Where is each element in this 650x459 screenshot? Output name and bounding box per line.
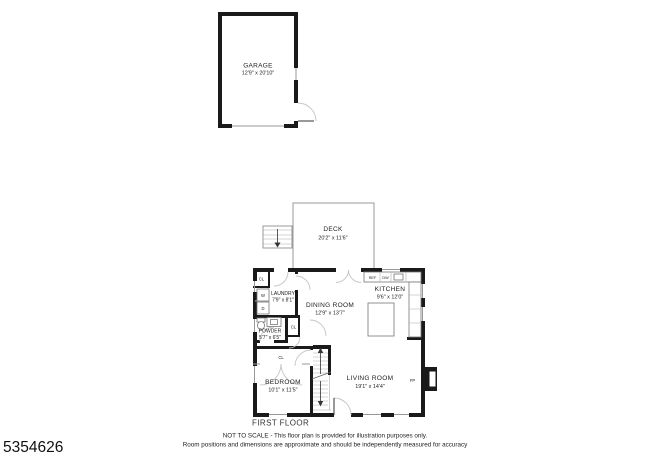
dining-room-dims: 12'9" x 13'7"	[315, 311, 345, 317]
laundry-dims: 7'9" x 8'1"	[272, 298, 294, 304]
living-room-name: LIVING ROOM	[347, 375, 394, 382]
kitchen-fixtures: REF DW	[364, 272, 421, 337]
laundry-fixtures: W D	[257, 289, 269, 314]
fireplace-firebox	[430, 372, 436, 387]
garage-name: GARAGE	[243, 63, 273, 70]
laundry-deck-door-arc	[274, 272, 288, 286]
deck: DECK 20'2" x 11'6"	[263, 203, 374, 268]
floor-label: FIRST FLOOR	[252, 419, 309, 428]
floor-plan-page: GARAGE 12'9" x 20'10" DECK 20'2" x 11'6"…	[0, 0, 650, 459]
garage-dims: 12'9" x 20'10"	[242, 71, 275, 77]
living-room-dims: 19'1" x 14'4"	[355, 384, 385, 390]
washer-label: W	[261, 293, 265, 298]
fireplace: FP	[410, 367, 437, 391]
garage: GARAGE 12'9" x 20'10"	[218, 12, 316, 128]
deck-double-door-arc-right	[349, 270, 362, 283]
powder-dims: 5'7" x 6'5"	[259, 335, 281, 341]
dining-room-name: DINING ROOM	[306, 302, 354, 309]
dryer-label: D	[261, 306, 264, 311]
deck-stairs	[263, 226, 292, 248]
laundry-name: LAUNDRY	[271, 291, 295, 297]
fireplace-label: FP	[410, 378, 416, 383]
bedroom-dims: 10'1" x 11'5"	[268, 388, 297, 394]
hall-door-arc	[310, 320, 326, 336]
kitchen-sink	[394, 274, 403, 280]
kitchen-name: KITCHEN	[375, 286, 406, 293]
deck-stairs-arrow-head	[275, 243, 281, 248]
stair-down-arrow-head	[318, 401, 323, 407]
refrigerator-label: REF	[369, 276, 377, 280]
powder-name: POWDER	[259, 329, 282, 335]
laundry-dining-door-arc	[296, 276, 310, 290]
deck-dims: 20'2" x 11'6"	[318, 236, 347, 242]
closet-bedroom-label: CL	[278, 355, 284, 360]
bedroom-name: BEDROOM	[265, 379, 301, 386]
kitchen-right-counter	[409, 282, 421, 337]
closet-topleft-label: CL	[259, 277, 265, 282]
powder-sink	[271, 320, 278, 325]
floor-plan-drawing: GARAGE 12'9" x 20'10" DECK 20'2" x 11'6"…	[0, 0, 650, 459]
garage-entry-door-arc	[298, 103, 316, 121]
listing-id: 5354626	[3, 439, 63, 456]
deck-name: DECK	[323, 226, 343, 233]
deck-double-door-arc-left	[336, 270, 349, 283]
disclaimer-line2: Room positions and dimensions are approx…	[183, 442, 468, 449]
dishwasher-label: DW	[382, 276, 389, 280]
kitchen-island	[368, 303, 394, 336]
kitchen-dims: 9'6" x 12'0"	[377, 295, 404, 301]
front-door-arc	[334, 398, 351, 415]
disclaimer-line1: NOT TO SCALE - This floor plan is provid…	[223, 433, 428, 440]
closet-hall-label: CL	[291, 325, 297, 330]
